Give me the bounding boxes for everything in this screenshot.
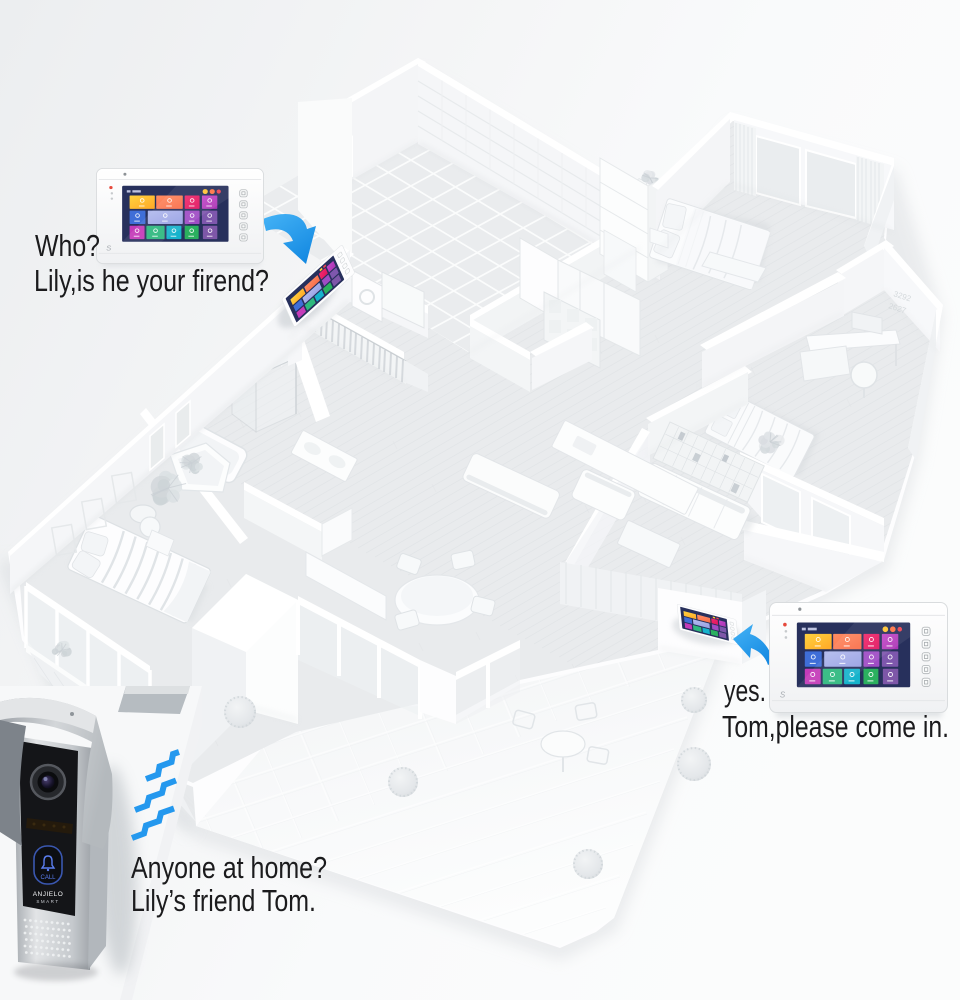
- svg-text:Anyone at home?: Anyone at home?: [131, 850, 327, 885]
- svg-text:yes.: yes.: [724, 673, 766, 708]
- svg-text:Lily,is he your firend?: Lily,is he your firend?: [34, 263, 269, 298]
- svg-text:CALL: CALL: [40, 875, 56, 881]
- svg-text:Who?: Who?: [35, 228, 100, 263]
- svg-text:Lily’s friend Tom.: Lily’s friend Tom.: [131, 883, 316, 918]
- svg-text:ANJIELO: ANJIELO: [33, 891, 64, 898]
- svg-text:SMART: SMART: [36, 899, 59, 904]
- svg-text:Tom,please come in.: Tom,please come in.: [722, 709, 949, 744]
